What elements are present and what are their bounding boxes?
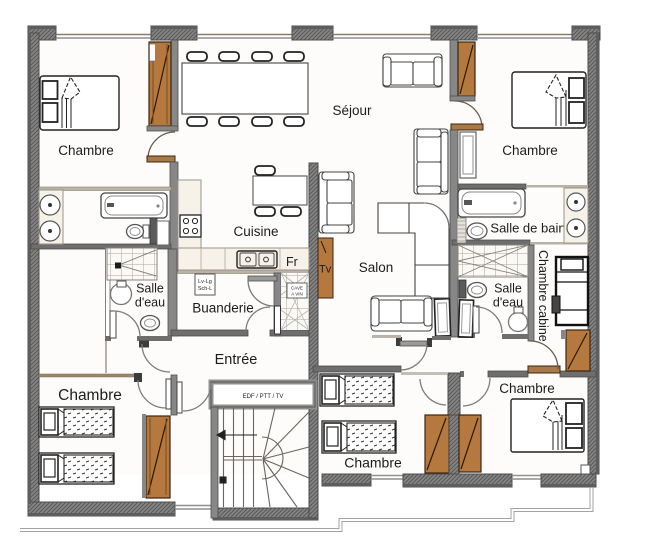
svg-text:Lv-Lg: Lv-Lg xyxy=(198,279,212,285)
svg-text:Entrée: Entrée xyxy=(215,352,258,368)
svg-text:Chambre: Chambre xyxy=(502,143,558,158)
svg-text:Chambre cabine: Chambre cabine xyxy=(536,250,550,342)
svg-text:d'eau: d'eau xyxy=(135,296,165,310)
svg-text:Salle: Salle xyxy=(494,282,522,296)
svg-text:Séjour: Séjour xyxy=(332,103,372,118)
svg-text:CAVE: CAVE xyxy=(291,286,303,291)
svg-text:Salon: Salon xyxy=(359,260,394,275)
svg-text:Buanderie: Buanderie xyxy=(192,301,254,316)
svg-text:Tv: Tv xyxy=(319,264,332,276)
svg-text:Salle de bain: Salle de bain xyxy=(490,221,565,236)
svg-text:Sch-L: Sch-L xyxy=(198,286,212,292)
svg-text:Chambre: Chambre xyxy=(344,455,402,471)
svg-text:Salle: Salle xyxy=(136,282,164,296)
svg-text:Chambre: Chambre xyxy=(58,143,114,158)
svg-text:Cuisine: Cuisine xyxy=(233,224,278,239)
svg-text:Chambre: Chambre xyxy=(58,387,122,404)
svg-text:EDF / PTT / TV: EDF / PTT / TV xyxy=(243,394,284,400)
svg-text:Chambre: Chambre xyxy=(499,381,555,396)
svg-text:Fr: Fr xyxy=(286,255,298,269)
svg-text:A VIN: A VIN xyxy=(291,292,303,297)
